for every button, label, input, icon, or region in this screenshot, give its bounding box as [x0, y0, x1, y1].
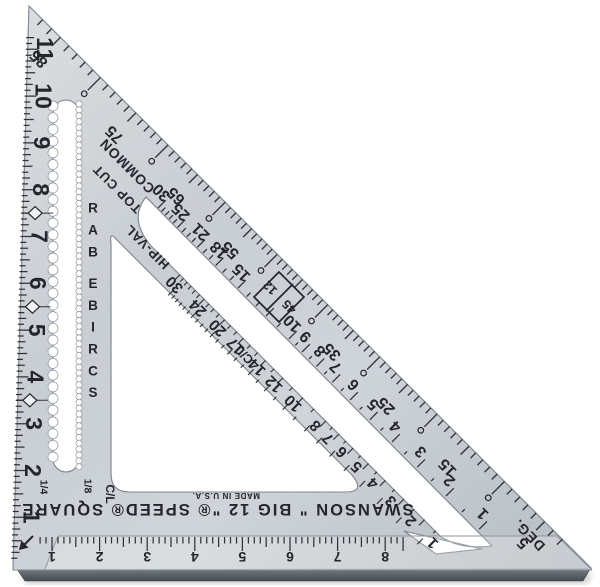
scale-number: 4 [191, 549, 199, 565]
scallop-notch [76, 347, 82, 353]
made-in-stamp: MADE IN U.S.A. [192, 491, 260, 500]
scallop-notch [76, 434, 82, 440]
scale-number: A [88, 223, 98, 238]
scallop-notch [76, 154, 82, 160]
scallop-notch [76, 382, 82, 388]
scallop-notch [48, 288, 58, 298]
scallop-notch [76, 177, 82, 183]
scallop-notch [48, 113, 58, 123]
scallop-notch [76, 212, 82, 218]
scallop-notch [76, 288, 82, 294]
scallop-notch [76, 405, 82, 411]
scallop-notch [76, 306, 82, 312]
scallop-notch [76, 464, 82, 470]
scallop-notch [76, 265, 82, 271]
scallop-notch [76, 271, 82, 277]
scallop-notch [76, 195, 82, 201]
scale-number: 3 [143, 549, 151, 565]
scale-number: 6 [286, 549, 294, 565]
scale-number: 2 [20, 464, 46, 477]
scallop-notch [48, 206, 58, 216]
scallop-notch [76, 118, 82, 124]
scallop-notch [76, 253, 82, 259]
scallop-notch [48, 370, 58, 380]
scallop-notch [76, 235, 82, 241]
scallop-notch [76, 230, 82, 236]
scallop-notch [76, 171, 82, 177]
scallop-notch [76, 417, 82, 423]
scallop-notch [76, 446, 82, 452]
scale-number: 9 [29, 137, 55, 150]
scallop-notch [76, 159, 82, 165]
scallop-notch [76, 276, 82, 282]
scale-number: 10 [30, 83, 56, 109]
scale-number: 8 [381, 549, 389, 565]
scallop-notch [76, 329, 82, 335]
scale-number: 7 [26, 230, 52, 243]
scallop-notch [76, 335, 82, 341]
scribe-bar-label: RABEBIRCS [88, 201, 98, 400]
quarter-inch-label: 1/4 [37, 480, 49, 495]
scale-number: B [88, 244, 98, 259]
scallop-notch [76, 224, 82, 230]
scallop-notch [76, 317, 82, 323]
scale-number: 6 [25, 277, 51, 290]
scallop-notch [76, 411, 82, 417]
scallop-notch [76, 300, 82, 306]
scribe-slot-scallops [48, 101, 82, 470]
scale-number: I [91, 320, 95, 335]
scallop-notch [76, 440, 82, 446]
scale-number: C [88, 363, 98, 378]
scallop-notch [76, 101, 82, 107]
scallop-notch [76, 358, 82, 364]
scallop-notch [76, 142, 82, 148]
scallop-notch [76, 241, 82, 247]
scallop-notch [76, 452, 82, 458]
scale-number: 8 [28, 183, 54, 196]
scallop-notch [48, 382, 58, 392]
scallop-notch [76, 259, 82, 265]
scallop-notch [76, 294, 82, 300]
scallop-notch [48, 218, 58, 228]
scale-number: 1 [48, 549, 56, 565]
scallop-notch [76, 458, 82, 464]
scallop-notch [76, 247, 82, 253]
scale-number: 5 [24, 324, 50, 337]
scallop-notch [48, 171, 58, 181]
scallop-notch [76, 388, 82, 394]
scallop-notch [76, 189, 82, 195]
scallop-notch [48, 265, 58, 275]
eighth-inch-label: 1/8 [81, 479, 93, 494]
scallop-notch [48, 429, 58, 439]
scallop-notch [76, 130, 82, 136]
scallop-notch [76, 183, 82, 189]
aluminum-body [13, 6, 592, 570]
speed-square-photo: 1234567891011515253555657585302521181510… [0, 0, 600, 587]
scallop-notch [48, 405, 58, 415]
scallop-notch [76, 429, 82, 435]
scallop-notch [48, 440, 58, 450]
scallop-notch [76, 206, 82, 212]
scallop-notch [76, 341, 82, 347]
scallop-notch [76, 200, 82, 206]
scale-number: R [88, 342, 98, 357]
scallop-notch [48, 347, 58, 357]
speed-square: 1234567891011515253555657585302521181510… [0, 0, 600, 587]
scallop-notch [48, 312, 58, 322]
body-shape [13, 6, 592, 570]
scallop-notch [48, 160, 58, 170]
lip-side-face [17, 569, 590, 581]
scale-number: E [88, 276, 97, 291]
scallop-notch [48, 452, 58, 462]
lip-top-surface [45, 536, 590, 569]
scallop-notch [76, 107, 82, 113]
brand-stamp: SWANSON " BIG 12 "® SPEED® SQUARE [21, 500, 414, 518]
scallop-notch [48, 124, 58, 134]
scribe-centerline-label: C/L [103, 484, 117, 503]
scallop-notch [76, 352, 82, 358]
scale-number: 7 [333, 549, 341, 565]
scallop-notch [76, 399, 82, 405]
scallop-notch [76, 376, 82, 382]
scallop-notch [48, 300, 58, 310]
scallop-notch [76, 165, 82, 171]
scale-number: B [88, 298, 98, 313]
scallop-notch [76, 323, 82, 329]
scallop-notch [48, 253, 58, 263]
scallop-notch [76, 136, 82, 142]
scale-number: 3 [21, 417, 47, 430]
scale-number: 4 [22, 371, 48, 384]
scallop-notch [76, 364, 82, 370]
scallop-notch [76, 423, 82, 429]
scallop-notch [76, 124, 82, 130]
scale-number: 5 [238, 549, 246, 565]
scallop-notch [48, 358, 58, 368]
scallop-notch [76, 218, 82, 224]
scallop-notch [48, 417, 58, 427]
scale-number: R [88, 201, 98, 216]
scallop-notch [76, 282, 82, 288]
scale-number: 2 [95, 549, 103, 565]
scallop-notch [76, 113, 82, 119]
scallop-notch [48, 394, 58, 404]
scale-number: S [88, 385, 97, 400]
scallop-notch [76, 148, 82, 154]
scallop-notch [76, 370, 82, 376]
scallop-notch [76, 312, 82, 318]
scallop-notch [76, 393, 82, 399]
